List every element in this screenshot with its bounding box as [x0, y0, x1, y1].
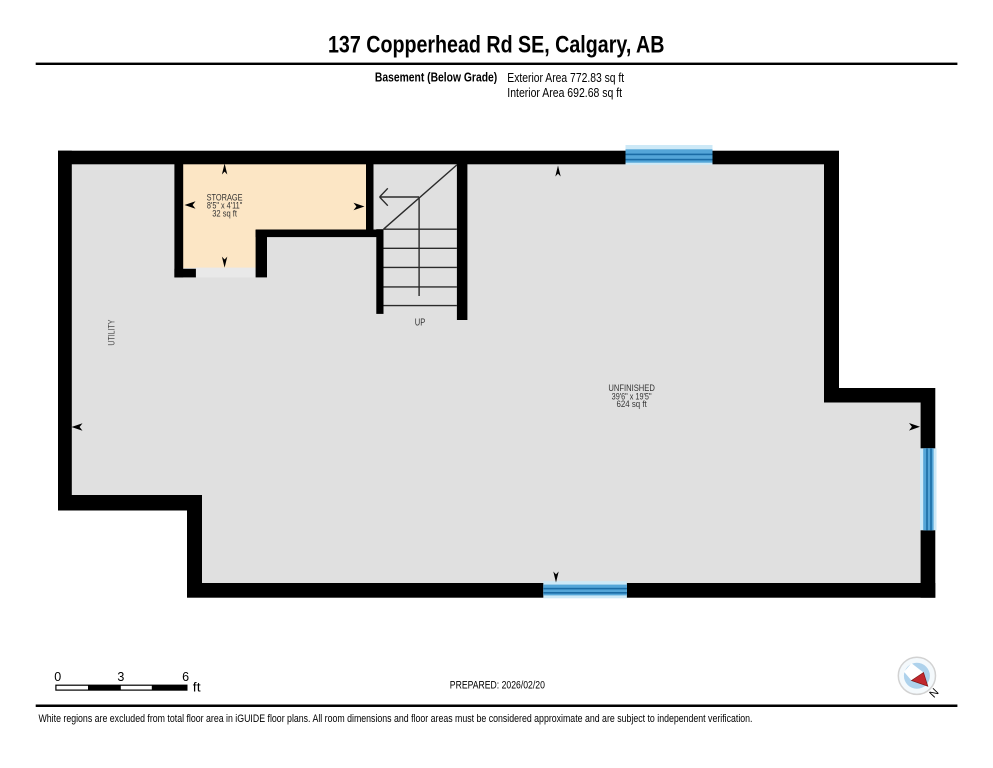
svg-text:137 Copperhead Rd SE, Calgary,: 137 Copperhead Rd SE, Calgary, AB	[328, 32, 664, 59]
svg-text:Interior Area 692.68 sq ft: Interior Area 692.68 sq ft	[507, 85, 622, 100]
svg-text:3: 3	[117, 670, 124, 684]
svg-text:32 sq ft: 32 sq ft	[212, 208, 237, 218]
svg-text:0: 0	[54, 670, 61, 684]
svg-text:Basement (Below Grade): Basement (Below Grade)	[375, 70, 497, 85]
svg-text:Exterior Area 772.83 sq ft: Exterior Area 772.83 sq ft	[507, 70, 624, 85]
svg-text:ft: ft	[193, 681, 201, 695]
svg-text:UP: UP	[415, 318, 426, 329]
svg-text:624 sq ft: 624 sq ft	[617, 399, 648, 409]
svg-text:UTILITY: UTILITY	[107, 320, 117, 346]
svg-text:6: 6	[182, 670, 189, 684]
svg-text:White regions are excluded fro: White regions are excluded from total fl…	[39, 713, 753, 725]
svg-text:PREPARED: 2026/02/20: PREPARED: 2026/02/20	[450, 680, 545, 692]
